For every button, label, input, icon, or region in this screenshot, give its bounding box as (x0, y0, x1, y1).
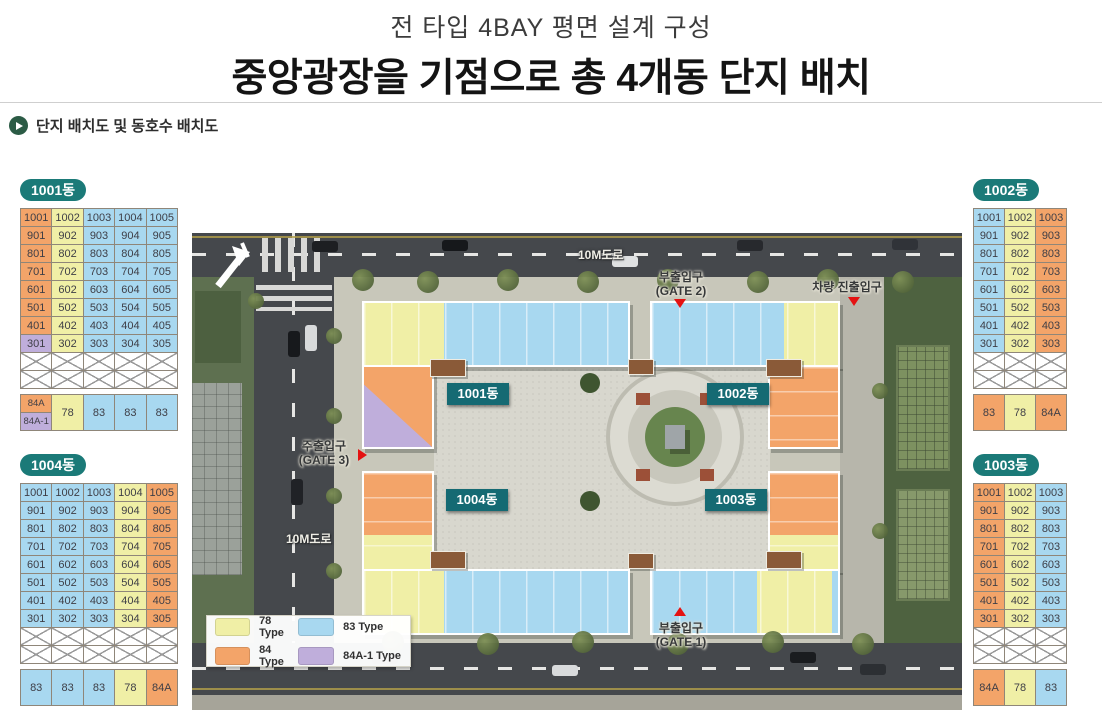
plaza-bench (700, 469, 714, 481)
unit-cell: 1002 (1005, 209, 1036, 227)
unit-cell: 702 (1005, 538, 1036, 556)
unit-cell: 903 (1036, 502, 1067, 520)
car (291, 479, 303, 505)
building-badge-1004: 1004동 (20, 454, 86, 476)
unit-cell: 802 (52, 520, 83, 538)
play-icon (9, 116, 28, 135)
type-cell: 83 (84, 670, 115, 706)
crossed-empty-cell (115, 371, 146, 389)
tree (477, 633, 499, 655)
unit-cell: 702 (52, 263, 83, 281)
unit-cell: 1003 (1036, 209, 1067, 227)
tree (747, 271, 769, 293)
unit-cell: 602 (1005, 556, 1036, 574)
site-map: 10M도로 10M도로 부출입구(GATE 2) 차량 진출입구 주출입구(GA… (192, 233, 962, 710)
gate3-label: 주출입구(GATE 3) (288, 439, 360, 467)
building-badge-1003: 1003동 (973, 454, 1039, 476)
crossed-empty-cell (52, 646, 83, 664)
entrance-stub (628, 553, 654, 569)
car (442, 240, 468, 251)
courtyard-shrub (580, 373, 600, 393)
gate1-marker-icon (674, 607, 686, 616)
crossed-empty-cell (84, 353, 115, 371)
gate3-marker-icon (358, 449, 367, 461)
unit-cell: 702 (1005, 263, 1036, 281)
unit-cell: 401 (21, 592, 52, 610)
car (552, 665, 578, 676)
map-building-1001-wing (362, 365, 434, 449)
crossed-empty-cell (52, 353, 83, 371)
crossed-empty-cell (52, 628, 83, 646)
unit-block-1002: 1002동 1001100210039019029038018028037017… (973, 179, 1067, 431)
unit-cell: 1001 (974, 209, 1005, 227)
type-cell: 83 (21, 670, 52, 706)
unit-cell: 603 (1036, 556, 1067, 574)
unit-cell: 305 (147, 335, 178, 353)
brochure-page: 전 타입 4BAY 평면 설계 구성 중앙광장을 기점으로 총 4개동 단지 배… (0, 0, 1102, 722)
gate2-marker-icon (674, 299, 686, 308)
unit-table-1002: 1001100210039019029038018028037017027036… (973, 208, 1067, 431)
legend-swatch (298, 618, 334, 636)
unit-cell: 1004 (115, 209, 146, 227)
unit-cell: 803 (84, 520, 115, 538)
map-building-1002-wing (768, 365, 840, 449)
unit-cell: 703 (84, 538, 115, 556)
map-building-1004-wing (362, 471, 434, 571)
unit-cell: 905 (147, 502, 178, 520)
unit-cell: 803 (1036, 520, 1067, 538)
tree (572, 631, 594, 653)
road-label-top: 10M도로 (578, 246, 623, 263)
unit-cell: 1001 (21, 484, 52, 502)
tree (497, 269, 519, 291)
map-badge-1003: 1003동 (705, 489, 767, 511)
unit-cell: 702 (52, 538, 83, 556)
unit-cell: 1003 (84, 484, 115, 502)
crossed-empty-cell (1005, 628, 1036, 646)
unit-cell: 404 (115, 317, 146, 335)
type-cell: 78 (1005, 395, 1036, 431)
unit-cell: 801 (21, 520, 52, 538)
unit-cell: 502 (1005, 574, 1036, 592)
crossed-empty-cell (147, 371, 178, 389)
unit-cell: 904 (115, 502, 146, 520)
car (790, 652, 816, 663)
unit-cell: 605 (147, 281, 178, 299)
crossed-empty-cell (147, 646, 178, 664)
north-arrow-icon (212, 241, 256, 296)
unit-cell: 902 (1005, 227, 1036, 245)
unit-cell: 403 (1036, 592, 1067, 610)
unit-cell: 703 (1036, 538, 1067, 556)
car (288, 331, 300, 357)
unit-cell: 301 (21, 610, 52, 628)
crossed-empty-cell (147, 353, 178, 371)
unit-cell: 804 (115, 520, 146, 538)
legend-label: 84A-1 Type (343, 650, 401, 662)
unit-cell: 302 (52, 335, 83, 353)
unit-cell: 504 (115, 574, 146, 592)
unit-cell: 402 (52, 317, 83, 335)
unit-cell: 302 (1005, 610, 1036, 628)
tree (326, 563, 342, 579)
unit-cell: 805 (147, 520, 178, 538)
unit-cell: 403 (1036, 317, 1067, 335)
tree (326, 408, 342, 424)
map-building-1001-slab (362, 301, 630, 367)
unit-table-1001: 1001100210031004100590190290390490580180… (20, 208, 178, 431)
unit-cell: 802 (1005, 520, 1036, 538)
unit-cell: 505 (147, 574, 178, 592)
crossed-empty-cell (1005, 371, 1036, 389)
crossed-empty-cell (1036, 371, 1067, 389)
plaza-monument (665, 425, 685, 449)
tree (872, 383, 888, 399)
tree (852, 633, 874, 655)
unit-block-1001: 1001동 1001100210031004100590190290390490… (20, 179, 178, 431)
unit-table-1004: 1001100210031004100590190290390490580180… (20, 483, 178, 706)
crossed-empty-cell (974, 353, 1005, 371)
unit-cell: 1005 (147, 209, 178, 227)
unit-cell: 705 (147, 538, 178, 556)
unit-cell: 601 (974, 556, 1005, 574)
legend-item: 83 Type (298, 615, 402, 639)
unit-cell: 902 (52, 227, 83, 245)
type-cell: 83 (84, 395, 115, 431)
unit-cell: 1002 (1005, 484, 1036, 502)
car (305, 325, 317, 351)
unit-cell: 402 (1005, 592, 1036, 610)
tree (417, 271, 439, 293)
tree (577, 271, 599, 293)
unit-cell: 302 (1005, 335, 1036, 353)
type-cell: 83 (115, 395, 146, 431)
crossed-empty-cell (21, 371, 52, 389)
unit-cell: 501 (974, 299, 1005, 317)
header-divider (0, 102, 1102, 103)
right-building-1 (896, 345, 950, 471)
section-label: 단지 배치도 및 동호수 배치도 (36, 115, 218, 136)
tree (326, 488, 342, 504)
unit-cell: 301 (974, 610, 1005, 628)
crossed-empty-cell (1036, 353, 1067, 371)
type-cell: 78 (52, 395, 83, 431)
unit-cell: 403 (84, 592, 115, 610)
entrance-stub (766, 551, 802, 569)
unit-cell: 602 (52, 281, 83, 299)
legend-label: 78 Type (259, 615, 298, 639)
section-header: 단지 배치도 및 동호수 배치도 (9, 115, 218, 136)
unit-cell: 803 (1036, 245, 1067, 263)
unit-cell: 901 (974, 502, 1005, 520)
crossed-empty-cell (974, 646, 1005, 664)
unit-cell: 301 (974, 335, 1005, 353)
plaza-bench (636, 393, 650, 405)
unit-cell: 905 (147, 227, 178, 245)
unit-cell: 903 (1036, 227, 1067, 245)
crossed-empty-cell (1036, 628, 1067, 646)
unit-cell: 401 (974, 592, 1005, 610)
map-badge-1004: 1004동 (446, 489, 508, 511)
gate2-label: 부출입구(GATE 2) (644, 270, 718, 298)
unit-cell: 701 (21, 538, 52, 556)
gate1-label: 부출입구(GATE 1) (644, 621, 718, 649)
crossed-empty-cell (147, 628, 178, 646)
type-cell: 83 (52, 670, 83, 706)
tree (352, 269, 374, 291)
car (892, 239, 918, 250)
unit-cell: 1001 (21, 209, 52, 227)
unit-cell: 801 (21, 245, 52, 263)
unit-cell: 301 (21, 335, 52, 353)
type-cell: 78 (115, 670, 146, 706)
unit-cell: 705 (147, 263, 178, 281)
vehicle-entrance-label: 차량 진출입구 (792, 280, 902, 294)
unit-cell: 302 (52, 610, 83, 628)
unit-cell: 802 (1005, 245, 1036, 263)
unit-cell: 604 (115, 556, 146, 574)
crossed-empty-cell (84, 646, 115, 664)
building-badge-1001: 1001동 (20, 179, 86, 201)
unit-cell: 601 (21, 556, 52, 574)
legend-swatch (298, 647, 334, 665)
unit-cell: 704 (115, 263, 146, 281)
car (312, 241, 338, 252)
unit-cell: 1003 (1036, 484, 1067, 502)
map-badge-1002: 1002동 (707, 383, 769, 405)
tree (872, 523, 888, 539)
crossed-empty-cell (21, 628, 52, 646)
unit-cell: 303 (1036, 335, 1067, 353)
legend-item: 78 Type (215, 615, 298, 639)
crossed-empty-cell (84, 371, 115, 389)
crossed-empty-cell (84, 628, 115, 646)
type-cell: 84A-1 (21, 413, 52, 431)
crossed-empty-cell (115, 353, 146, 371)
tree (762, 631, 784, 653)
car (737, 240, 763, 251)
unit-cell: 401 (21, 317, 52, 335)
map-legend: 78 Type83 Type84 Type84A-1 Type (206, 615, 411, 667)
vehicle-entrance-marker-icon (848, 297, 860, 306)
unit-cell: 405 (147, 317, 178, 335)
unit-cell: 501 (974, 574, 1005, 592)
unit-cell: 502 (52, 299, 83, 317)
unit-block-1004: 1004동 1001100210031004100590190290390490… (20, 454, 178, 706)
plaza-bench (636, 469, 650, 481)
unit-cell: 502 (1005, 299, 1036, 317)
unit-cell: 303 (84, 610, 115, 628)
left-block-building (192, 383, 242, 575)
unit-cell: 405 (147, 592, 178, 610)
type-cell: 84A (21, 395, 52, 413)
unit-cell: 401 (974, 317, 1005, 335)
unit-cell: 701 (974, 263, 1005, 281)
legend-swatch (215, 618, 250, 636)
unit-cell: 502 (52, 574, 83, 592)
unit-cell: 703 (1036, 263, 1067, 281)
unit-cell: 603 (1036, 281, 1067, 299)
vehicle-driveway (840, 277, 884, 643)
unit-cell: 303 (1036, 610, 1067, 628)
crossed-empty-cell (21, 353, 52, 371)
map-badge-1001: 1001동 (447, 383, 509, 405)
crossed-empty-cell (52, 371, 83, 389)
unit-cell: 605 (147, 556, 178, 574)
unit-cell: 803 (84, 245, 115, 263)
type-cell: 83 (1036, 670, 1067, 706)
unit-cell: 403 (84, 317, 115, 335)
unit-cell: 902 (1005, 502, 1036, 520)
tree (326, 328, 342, 344)
crossed-empty-cell (1036, 646, 1067, 664)
unit-table-1003: 1001100210039019029038018028037017027036… (973, 483, 1067, 706)
type-cell: 84A (974, 670, 1005, 706)
unit-cell: 503 (1036, 299, 1067, 317)
unit-cell: 801 (974, 245, 1005, 263)
unit-cell: 804 (115, 245, 146, 263)
entrance-stub (628, 359, 654, 375)
legend-item: 84A-1 Type (298, 644, 402, 668)
unit-cell: 604 (115, 281, 146, 299)
map-building-1002-slab (650, 301, 840, 367)
building-badge-1002: 1002동 (973, 179, 1039, 201)
unit-cell: 901 (974, 227, 1005, 245)
unit-cell: 305 (147, 610, 178, 628)
unit-cell: 601 (974, 281, 1005, 299)
unit-cell: 601 (21, 281, 52, 299)
entrance-stub (766, 359, 802, 377)
unit-cell: 904 (115, 227, 146, 245)
crosswalk-left (256, 285, 332, 311)
unit-cell: 801 (974, 520, 1005, 538)
page-subtitle: 전 타입 4BAY 평면 설계 구성 (0, 0, 1102, 44)
unit-cell: 703 (84, 263, 115, 281)
unit-cell: 402 (1005, 317, 1036, 335)
unit-block-1003: 1003동 1001100210039019029038018028037017… (973, 454, 1067, 706)
type-cell: 83 (147, 395, 178, 431)
unit-cell: 1002 (52, 209, 83, 227)
legend-item: 84 Type (215, 644, 298, 668)
crossed-empty-cell (1005, 353, 1036, 371)
crossed-empty-cell (115, 646, 146, 664)
unit-cell: 603 (84, 281, 115, 299)
left-block-roof (195, 291, 241, 363)
unit-cell: 501 (21, 574, 52, 592)
type-cell: 78 (1005, 670, 1036, 706)
unit-cell: 1003 (84, 209, 115, 227)
unit-cell: 505 (147, 299, 178, 317)
unit-cell: 304 (115, 610, 146, 628)
type-cell: 84A (147, 670, 178, 706)
entrance-stub (430, 359, 466, 377)
unit-cell: 1004 (115, 484, 146, 502)
unit-cell: 701 (974, 538, 1005, 556)
unit-cell: 903 (84, 227, 115, 245)
legend-label: 83 Type (343, 621, 383, 633)
unit-cell: 1005 (147, 484, 178, 502)
page-title: 중앙광장을 기점으로 총 4개동 단지 배치 (0, 47, 1102, 103)
type-cell: 84A (1036, 395, 1067, 431)
type-cell: 83 (974, 395, 1005, 431)
unit-cell: 503 (1036, 574, 1067, 592)
road-label-left: 10M도로 (286, 530, 331, 547)
unit-cell: 704 (115, 538, 146, 556)
unit-cell: 1002 (52, 484, 83, 502)
unit-cell: 1001 (974, 484, 1005, 502)
unit-cell: 304 (115, 335, 146, 353)
lane-edge-yellow-bottom (192, 688, 962, 690)
unit-cell: 404 (115, 592, 146, 610)
legend-label: 84 Type (259, 644, 298, 668)
unit-cell: 701 (21, 263, 52, 281)
unit-cell: 303 (84, 335, 115, 353)
courtyard-shrub (580, 491, 600, 511)
entrance-stub (430, 551, 466, 569)
crossed-empty-cell (974, 628, 1005, 646)
unit-cell: 903 (84, 502, 115, 520)
legend-swatch (215, 647, 250, 665)
unit-cell: 901 (21, 502, 52, 520)
unit-cell: 805 (147, 245, 178, 263)
unit-cell: 503 (84, 299, 115, 317)
unit-cell: 504 (115, 299, 146, 317)
unit-cell: 602 (52, 556, 83, 574)
crossed-empty-cell (1005, 646, 1036, 664)
crossed-empty-cell (115, 628, 146, 646)
unit-cell: 902 (52, 502, 83, 520)
crossed-empty-cell (974, 371, 1005, 389)
sidewalk-bottom-edge (192, 695, 962, 710)
crossed-empty-cell (21, 646, 52, 664)
unit-cell: 402 (52, 592, 83, 610)
right-building-2 (896, 489, 950, 601)
car (860, 664, 886, 675)
unit-cell: 602 (1005, 281, 1036, 299)
unit-cell: 603 (84, 556, 115, 574)
unit-cell: 501 (21, 299, 52, 317)
unit-cell: 802 (52, 245, 83, 263)
unit-cell: 503 (84, 574, 115, 592)
unit-cell: 901 (21, 227, 52, 245)
